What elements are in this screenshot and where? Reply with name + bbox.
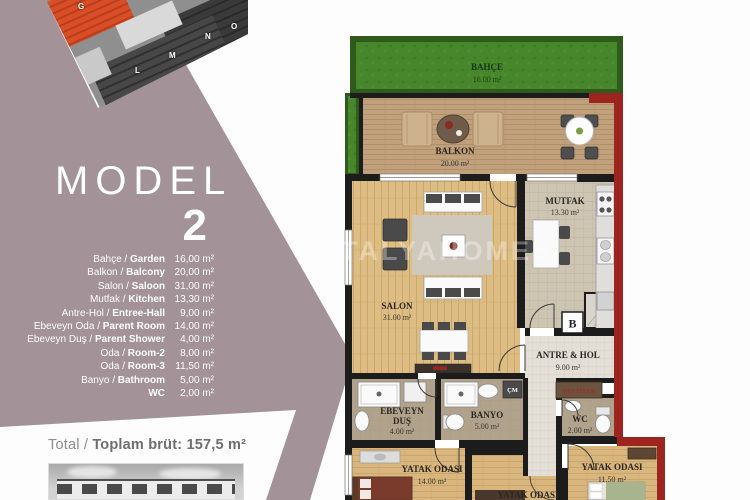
hall-label: ANTRE & HOL <box>536 350 600 360</box>
room-label: Antre-Hol / Entree-Hall <box>62 307 165 320</box>
brochure-page: G L M N O MODEL 2 Bahçe / Garden16,00 m²… <box>0 0 750 500</box>
corridor-floor <box>527 378 556 476</box>
room-label: Ebeveyn Duş / Parent Shower <box>27 333 165 346</box>
garden-label: BAHÇE <box>471 62 503 72</box>
bed3-label: YATAK ODASI <box>581 462 643 472</box>
room-list-row: Oda / Room-28,00 m² <box>0 347 214 360</box>
room-area: 11,50 m² <box>172 360 214 373</box>
model-number: 2 <box>55 204 207 248</box>
room-list-row: Ebeveyn Oda / Parent Room14,00 m² <box>0 320 214 333</box>
site-letter-g: G <box>78 2 84 11</box>
site-letter-m: M <box>169 51 176 60</box>
bath-label: BANYO <box>471 410 504 420</box>
elevation-photo <box>48 463 244 500</box>
kitchen-area-label: 13.30 m² <box>551 208 580 217</box>
bed1-area-label: 14.00 m² <box>418 477 447 486</box>
vestiyer-label: VESTİYER <box>562 388 596 395</box>
room-list-row: Mutfak / Kitchen13,30 m² <box>0 293 214 306</box>
garden-area-label: 16.00 m² <box>473 75 502 84</box>
room-area: 8,00 m² <box>172 347 214 360</box>
room-list-row: WC2,00 m² <box>0 387 214 400</box>
site-letter-l: L <box>135 66 140 75</box>
room-list-row: Antre-Hol / Entree-Hall9,00 m² <box>0 307 214 320</box>
parent-shower-label-1: EBEVEYN <box>380 406 424 416</box>
room-label: Banyo / Bathroom <box>81 374 165 387</box>
room-list-row: Oda / Room-311,50 m² <box>0 360 214 373</box>
room-area: 13,30 m² <box>172 293 214 306</box>
room-list-row: Bahçe / Garden16,00 m² <box>0 253 214 266</box>
room-area: 9,00 m² <box>172 307 214 320</box>
hall-area-label: 9.00 m² <box>556 363 581 372</box>
room-area: 16,00 m² <box>172 253 214 266</box>
elevation-building <box>57 479 235 500</box>
balcony-label: BALKON <box>435 146 475 156</box>
total-area-line: Total / Toplam brüt: 157,5 m² <box>48 437 246 453</box>
room-list-row: Banyo / Bathroom5,00 m² <box>0 374 214 387</box>
room-list-row: Salon / Saloon31,00 m² <box>0 280 214 293</box>
washer-label: ÇM <box>507 387 518 394</box>
balcony-area-label: 20.00 m² <box>441 159 470 168</box>
room-area: 14,00 m² <box>172 320 214 333</box>
cloud <box>67 466 117 478</box>
room-area: 20,00 m² <box>172 266 214 279</box>
bed3-area-label: 11.50 m² <box>598 475 627 484</box>
room-label: Mutfak / Kitchen <box>90 293 165 306</box>
room-list-row: Ebeveyn Duş / Parent Shower4,00 m² <box>0 333 214 346</box>
entrance-box: B <box>562 312 583 333</box>
room-label: Oda / Room-3 <box>101 360 165 373</box>
site-letter-n: N <box>205 32 211 41</box>
model-title-block: MODEL 2 <box>55 161 207 248</box>
vestiyer-closet: VESTİYER <box>556 382 602 398</box>
room-area: 2,00 m² <box>172 387 214 400</box>
room-area: 5,00 m² <box>172 374 214 387</box>
salon-label: SALON <box>381 301 413 311</box>
room-label: WC <box>148 387 165 400</box>
room-area-list: Bahçe / Garden16,00 m² Balkon / Balcony2… <box>0 253 214 400</box>
entrance-letter: B <box>568 317 576 331</box>
room-area: 4,00 m² <box>172 333 214 346</box>
wc-area-label: 2.00 m² <box>568 426 593 435</box>
wall <box>350 93 623 98</box>
elevation-windows <box>57 484 235 494</box>
parent-shower-area-label: 4.00 m² <box>390 427 415 436</box>
model-title: MODEL <box>55 161 207 201</box>
site-letter-o: O <box>231 22 237 31</box>
wc-label: WC <box>572 414 588 424</box>
room-label: Balkon / Balcony <box>87 266 165 279</box>
total-label: Total / <box>48 437 92 453</box>
wall <box>359 98 363 174</box>
room-label: Ebeveyn Oda / Parent Room <box>34 320 165 333</box>
floor-plan: B VESTİYER ÇM BAHÇE 16.00 m² BALKON 20.0… <box>340 30 750 500</box>
room-label: Bahçe / Garden <box>93 253 165 266</box>
room-label: Salon / Saloon <box>98 280 165 293</box>
parent-shower-label-2: DUŞ <box>393 416 411 426</box>
bath-area-label: 5.00 m² <box>475 422 500 431</box>
bed1-label: YATAK ODASI <box>401 464 463 474</box>
kitchen-label: MUTFAK <box>545 196 584 206</box>
room-list-row: Balkon / Balcony20,00 m² <box>0 266 214 279</box>
total-value: Toplam brüt: 157,5 m² <box>92 437 246 453</box>
bed2-label: YATAK ODASI <box>497 490 559 500</box>
salon-area-label: 31.00 m² <box>383 313 412 322</box>
room-label: Oda / Room-2 <box>101 347 165 360</box>
room-area: 31,00 m² <box>172 280 214 293</box>
